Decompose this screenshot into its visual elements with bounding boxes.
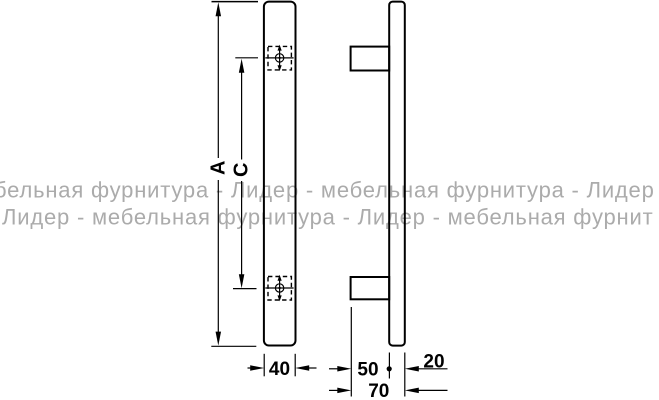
svg-text:40: 40 — [269, 359, 290, 380]
svg-text:50: 50 — [357, 360, 378, 381]
svg-text:A: A — [207, 161, 229, 175]
svg-text:70: 70 — [368, 381, 389, 400]
svg-text:20: 20 — [423, 351, 444, 372]
svg-text:Лидер - мебельная фурнитура -: Лидер - мебельная фурнитура - Лидер - ме… — [2, 205, 653, 230]
svg-text:C: C — [230, 163, 252, 177]
svg-text:бельная фурнитура - Лидер - ме: бельная фурнитура - Лидер - мебельная фу… — [0, 178, 655, 203]
